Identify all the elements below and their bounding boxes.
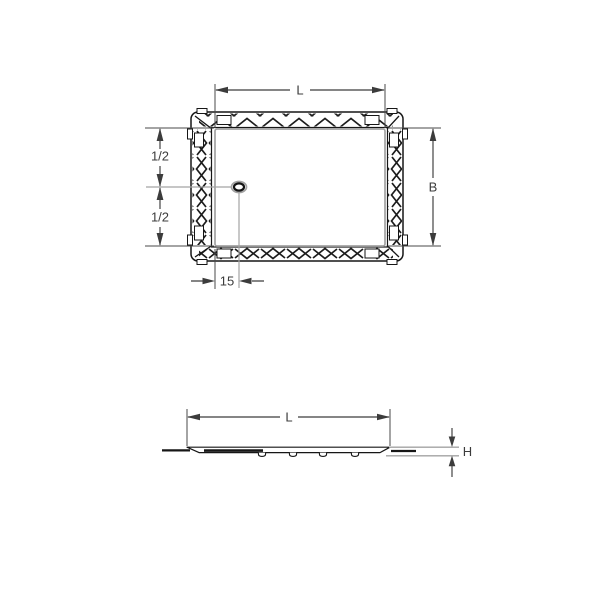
dim-label-height: H bbox=[463, 444, 472, 459]
arrowhead-up bbox=[430, 128, 437, 141]
arrowhead-up bbox=[449, 456, 456, 467]
top-view: L B 1/2 1/2 bbox=[145, 83, 441, 290]
arrowhead-right bbox=[372, 87, 385, 94]
side-view: L H bbox=[162, 409, 472, 477]
dim-label-drain-offset: 15 bbox=[220, 274, 234, 289]
arrowhead-right bbox=[377, 414, 390, 421]
dim-label-length-side: L bbox=[285, 410, 292, 425]
arrowhead-down bbox=[449, 437, 456, 448]
arrowhead-left bbox=[215, 87, 228, 94]
arrowhead-left bbox=[239, 278, 252, 285]
arrowhead-up bbox=[157, 187, 164, 200]
dim-label-length: L bbox=[296, 83, 303, 98]
dim-label-half-lower: 1/2 bbox=[151, 210, 169, 225]
drain-outlet bbox=[232, 182, 247, 193]
dimension-length-side: L bbox=[187, 409, 390, 446]
arrowhead-down bbox=[430, 233, 437, 246]
arrowhead-left bbox=[187, 414, 200, 421]
dimension-height: H bbox=[386, 428, 472, 477]
arrowhead-down bbox=[157, 233, 164, 246]
shower-tray-drawing: L B 1/2 1/2 bbox=[0, 0, 600, 600]
arrowhead-right bbox=[203, 278, 216, 285]
tray-profile bbox=[162, 447, 416, 456]
arrowhead-up bbox=[157, 128, 164, 141]
technical-drawing-page: L B 1/2 1/2 bbox=[0, 0, 600, 600]
dim-label-half-upper: 1/2 bbox=[151, 149, 169, 164]
arrowhead-down bbox=[157, 174, 164, 187]
dim-label-width: B bbox=[429, 180, 438, 195]
